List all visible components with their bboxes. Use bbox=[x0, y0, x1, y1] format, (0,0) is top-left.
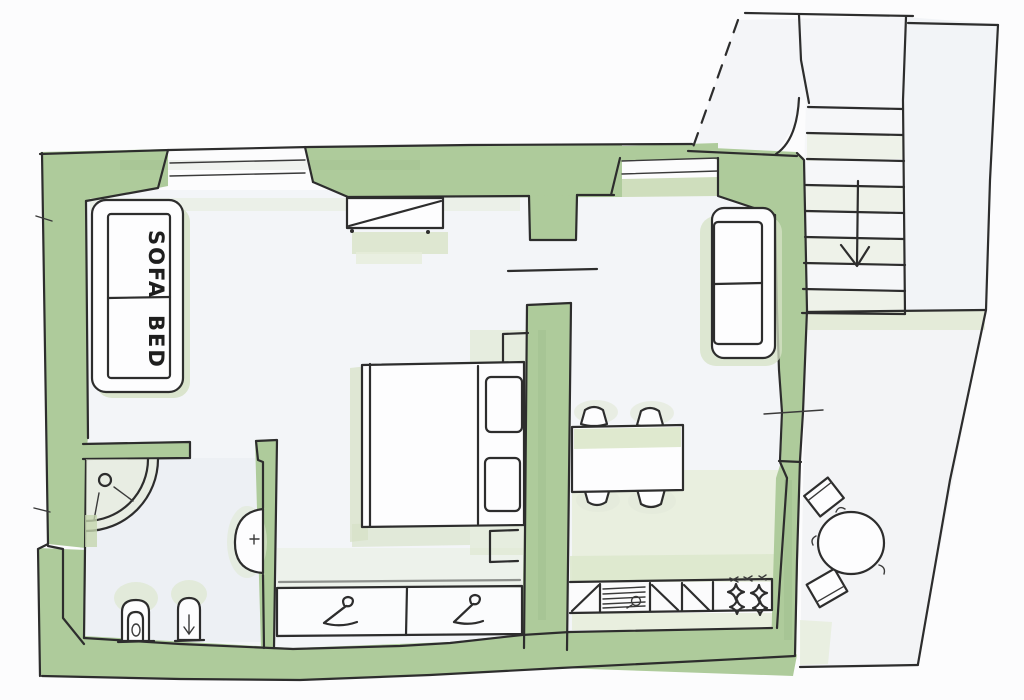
sofa-bed-label-sofa: SOFA bbox=[144, 230, 168, 299]
floor-plan: SOFA BED bbox=[0, 0, 1024, 700]
dining-chair bbox=[581, 407, 607, 426]
dining-table bbox=[572, 425, 683, 492]
pillow bbox=[486, 377, 522, 432]
sofa-bed: SOFA BED bbox=[92, 200, 183, 392]
lounge-sofa bbox=[700, 208, 782, 366]
stair-hall-strip bbox=[905, 17, 998, 312]
bidet bbox=[175, 598, 204, 641]
double-bed bbox=[362, 362, 524, 527]
floor-plan-page: SOFA BED bbox=[0, 0, 1024, 700]
wardrobe-body bbox=[278, 588, 522, 634]
sofa-bed-label-bed: BED bbox=[144, 315, 168, 369]
central-partition bbox=[522, 302, 572, 650]
hallway-wardrobe bbox=[277, 580, 522, 636]
sleeping-area bbox=[350, 362, 524, 547]
wall-pillar bbox=[529, 195, 578, 241]
dining-chair bbox=[637, 408, 663, 427]
pillow bbox=[485, 458, 520, 511]
terrace-corner-wash bbox=[800, 620, 832, 665]
toilet bbox=[118, 600, 154, 642]
